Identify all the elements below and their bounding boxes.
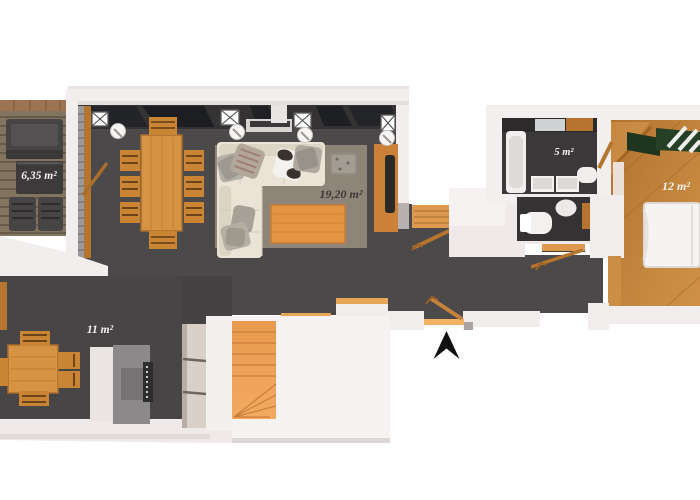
svg-text:12 m²: 12 m² [662, 179, 690, 193]
svg-text:5 m²: 5 m² [554, 147, 574, 158]
svg-text:11 m²: 11 m² [87, 324, 114, 336]
svg-text:6,35 m²: 6,35 m² [21, 170, 57, 182]
svg-text:19,20 m²: 19,20 m² [320, 187, 363, 201]
